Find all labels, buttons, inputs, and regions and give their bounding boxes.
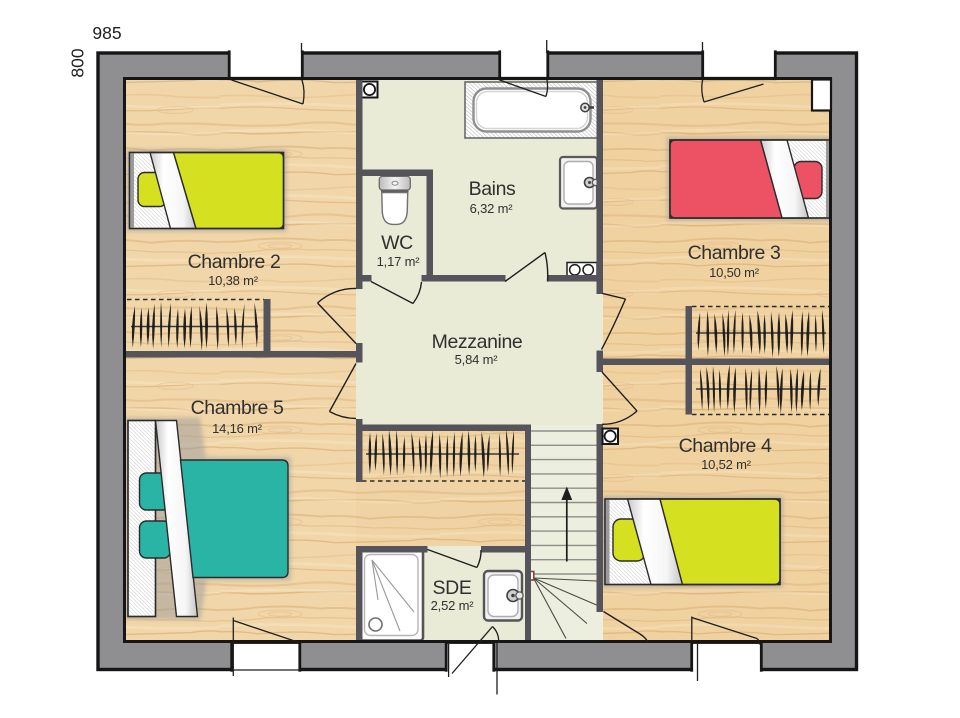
svg-text:2,52 m²: 2,52 m²	[431, 598, 475, 613]
svg-text:10,50 m²: 10,50 m²	[709, 265, 760, 280]
svg-text:800: 800	[68, 48, 88, 77]
svg-text:985: 985	[92, 23, 121, 43]
svg-text:Chambre 4: Chambre 4	[679, 435, 772, 457]
svg-text:10,38 m²: 10,38 m²	[208, 273, 259, 288]
svg-text:Chambre 3: Chambre 3	[688, 242, 781, 264]
svg-text:SDE: SDE	[433, 577, 472, 599]
svg-text:5,84 m²: 5,84 m²	[455, 352, 499, 367]
svg-text:1,17 m²: 1,17 m²	[377, 254, 421, 269]
svg-text:Bains: Bains	[469, 178, 516, 200]
svg-text:Chambre 5: Chambre 5	[191, 397, 284, 419]
svg-text:6,32 m²: 6,32 m²	[470, 201, 514, 216]
svg-text:14,16 m²: 14,16 m²	[212, 421, 263, 436]
svg-text:Chambre 2: Chambre 2	[188, 251, 281, 273]
svg-text:10,52 m²: 10,52 m²	[701, 457, 752, 472]
svg-text:WC: WC	[381, 232, 413, 254]
svg-text:Mezzanine: Mezzanine	[432, 331, 523, 353]
